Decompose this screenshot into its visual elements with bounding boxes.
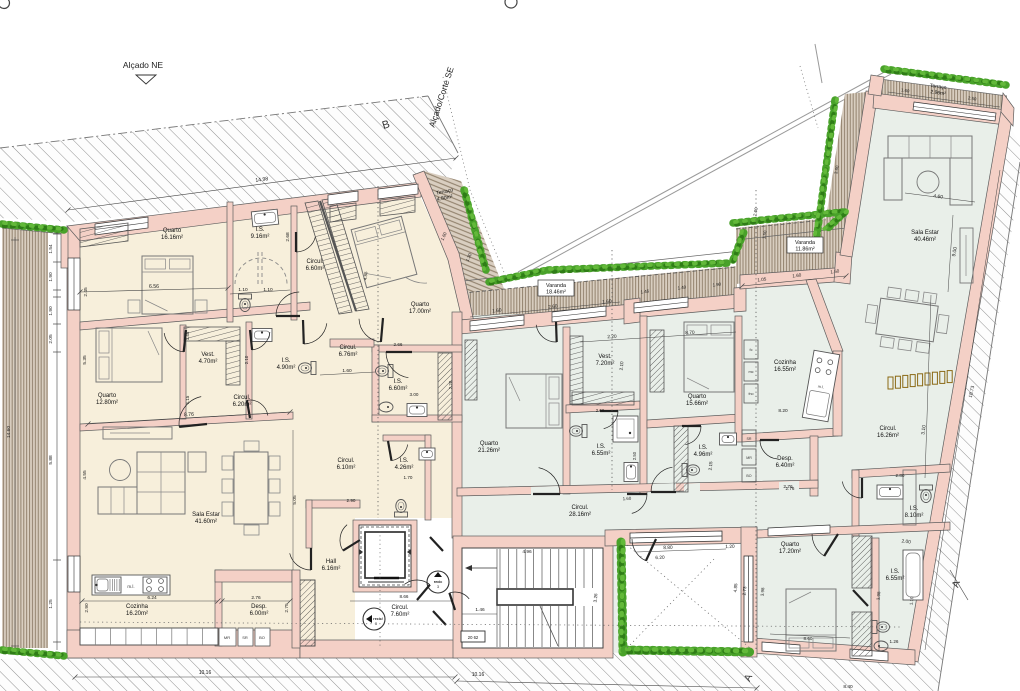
svg-text:8.76: 8.76	[184, 412, 195, 419]
svg-text:2.66: 2.66	[394, 342, 403, 347]
svg-text:1.60: 1.60	[792, 273, 802, 279]
svg-text:recic/: recic/	[373, 617, 382, 621]
svg-text:6.00m²: 6.00m²	[250, 611, 269, 617]
svg-text:1.10: 1.10	[238, 287, 248, 293]
svg-text:1.40: 1.40	[677, 285, 687, 291]
svg-text:6.55m²: 6.55m²	[592, 451, 611, 457]
svg-text:7.60m²: 7.60m²	[391, 612, 410, 618]
svg-text:MR: MR	[746, 456, 752, 460]
svg-text:2.80: 2.80	[896, 473, 905, 478]
svg-text:1.60: 1.60	[492, 307, 502, 314]
svg-text:Quarto: Quarto	[688, 394, 707, 400]
svg-text:I.S.: I.S.	[909, 506, 918, 512]
svg-text:1.60: 1.60	[602, 298, 612, 305]
svg-text:1.50: 1.50	[830, 269, 840, 275]
svg-text:11.86m²: 11.86m²	[795, 247, 815, 253]
svg-text:8.20: 8.20	[778, 408, 788, 414]
svg-text:Cozinha: Cozinha	[774, 360, 797, 366]
svg-text:8.80: 8.80	[663, 545, 673, 551]
svg-text:5.88: 5.88	[48, 455, 54, 465]
svg-text:1.05: 1.05	[757, 277, 767, 283]
svg-text:8.10m²: 8.10m²	[905, 513, 924, 519]
svg-text:Quarto: Quarto	[411, 302, 430, 308]
svg-text:12.80m²: 12.80m²	[96, 400, 118, 406]
svg-text:2.90: 2.90	[347, 498, 356, 503]
svg-text:Desp.: Desp.	[251, 604, 267, 610]
svg-text:2.15: 2.15	[708, 461, 714, 471]
svg-text:1.54: 1.54	[48, 244, 54, 254]
svg-text:Circul.: Circul.	[233, 395, 250, 401]
svg-text:9.16m²: 9.16m²	[251, 234, 270, 240]
svg-text:16.20m²: 16.20m²	[126, 611, 148, 617]
svg-text:1.46: 1.46	[475, 607, 485, 613]
svg-text:4.85: 4.85	[363, 271, 369, 281]
svg-text:1.90: 1.90	[48, 272, 54, 282]
svg-text:17.20m²: 17.20m²	[779, 549, 801, 555]
svg-text:1.46: 1.46	[640, 289, 650, 295]
svg-text:fno: fno	[749, 392, 754, 396]
svg-text:2.76: 2.76	[786, 486, 795, 491]
svg-text:I.S.: I.S.	[399, 458, 408, 464]
svg-text:Desp.: Desp.	[777, 456, 793, 462]
svg-text:8.40: 8.40	[843, 684, 853, 690]
svg-text:4.96m²: 4.96m²	[694, 452, 713, 458]
svg-text:6.16m²: 6.16m²	[322, 566, 341, 572]
svg-text:1.26: 1.26	[890, 639, 899, 644]
svg-text:SR: SR	[242, 635, 248, 640]
svg-text:40.46m²: 40.46m²	[914, 237, 936, 243]
svg-text:4.90m²: 4.90m²	[277, 365, 296, 371]
svg-text:Cozinha: Cozinha	[126, 604, 149, 610]
svg-text:Varanda: Varanda	[546, 283, 566, 289]
svg-text:Vest.: Vest.	[598, 354, 612, 360]
svg-text:I.S.: I.S.	[890, 569, 899, 575]
svg-text:7.20m²: 7.20m²	[596, 361, 615, 367]
svg-text:6.56: 6.56	[149, 284, 159, 290]
svg-text:2.45: 2.45	[83, 287, 89, 297]
svg-text:1.70: 1.70	[404, 475, 413, 480]
svg-text:2.50: 2.50	[632, 451, 637, 460]
svg-text:Hall: Hall	[326, 559, 336, 565]
svg-text:1.15: 1.15	[185, 395, 190, 404]
svg-text:Circul.: Circul.	[391, 605, 408, 611]
svg-text:Quarto: Quarto	[98, 393, 117, 399]
svg-text:16.55m²: 16.55m²	[774, 367, 796, 373]
svg-text:1.45: 1.45	[185, 331, 190, 340]
svg-text:6.60m²: 6.60m²	[306, 266, 325, 272]
svg-text:Quarto: Quarto	[480, 441, 499, 447]
svg-text:MR: MR	[224, 635, 230, 640]
svg-text:mc: mc	[748, 370, 753, 374]
svg-text:Circul.: Circul.	[571, 505, 588, 511]
svg-text:2.28: 2.28	[448, 380, 453, 389]
svg-text:6.24: 6.24	[147, 595, 157, 601]
svg-text:SR: SR	[747, 437, 752, 441]
svg-text:1.20: 1.20	[725, 544, 735, 550]
svg-text:Circul.: Circul.	[339, 345, 356, 351]
svg-text:BO: BO	[259, 635, 265, 640]
svg-text:2.68: 2.68	[285, 232, 291, 242]
svg-text:fc: fc	[750, 348, 753, 352]
svg-text:6.20: 6.20	[655, 555, 665, 561]
svg-text:Circul.: Circul.	[306, 259, 323, 265]
svg-text:8.66: 8.66	[400, 594, 409, 599]
svg-text:28.16m²: 28.16m²	[569, 512, 591, 518]
svg-text:2.10: 2.10	[244, 355, 249, 364]
svg-text:5.35: 5.35	[82, 355, 88, 365]
svg-text:6.10m²: 6.10m²	[337, 465, 356, 471]
svg-text:m.l.: m.l.	[127, 584, 134, 589]
svg-text:Quarto: Quarto	[163, 228, 182, 234]
svg-text:I.S.: I.S.	[281, 358, 290, 364]
svg-text:16.16m²: 16.16m²	[161, 235, 183, 241]
svg-text:Sala Estar: Sala Estar	[192, 512, 220, 518]
svg-text:2.76: 2.76	[251, 595, 261, 601]
svg-text:I.S.: I.S.	[698, 445, 707, 451]
svg-text:6.55m²: 6.55m²	[886, 576, 905, 582]
svg-text:1.60: 1.60	[623, 496, 632, 501]
svg-text:6.40m²: 6.40m²	[776, 463, 795, 469]
svg-text:1.10: 1.10	[263, 287, 273, 293]
svg-text:41.60m²: 41.60m²	[195, 519, 217, 525]
svg-text:1.90: 1.90	[48, 306, 54, 316]
svg-text:1.10: 1.10	[909, 596, 915, 606]
svg-text:6.60m²: 6.60m²	[389, 386, 408, 392]
svg-text:Quarto: Quarto	[781, 542, 800, 548]
svg-text:4.85: 4.85	[733, 583, 739, 593]
svg-text:I.S.: I.S.	[596, 444, 605, 450]
svg-text:3: 3	[437, 585, 439, 589]
svg-text:16.26m²: 16.26m²	[877, 433, 899, 439]
svg-text:I.S.: I.S.	[255, 227, 264, 233]
svg-text:Alçado NE: Alçado NE	[123, 60, 163, 70]
svg-text:4.55: 4.55	[82, 470, 88, 480]
svg-text:Varanda: Varanda	[795, 240, 815, 246]
svg-text:15.66m²: 15.66m²	[686, 401, 708, 407]
svg-text:Sala Estar: Sala Estar	[911, 230, 939, 236]
svg-text:2.73: 2.73	[742, 586, 748, 596]
svg-text:2.00: 2.00	[901, 539, 911, 546]
svg-text:Circul.: Circul.	[337, 458, 354, 464]
svg-text:17.00m²: 17.00m²	[409, 309, 431, 315]
svg-text:BO: BO	[746, 474, 751, 478]
svg-text:2.75: 2.75	[284, 603, 290, 613]
svg-text:I.S.: I.S.	[393, 379, 402, 385]
svg-text:6.20m²: 6.20m²	[233, 402, 252, 408]
svg-text:3.26: 3.26	[593, 593, 599, 603]
svg-text:recic: recic	[434, 580, 442, 584]
svg-text:10.16: 10.16	[199, 670, 212, 676]
svg-text:2.20: 2.20	[607, 334, 617, 340]
svg-text:8.60: 8.60	[804, 636, 813, 641]
svg-text:4.96: 4.96	[522, 549, 532, 555]
svg-text:20 62: 20 62	[468, 635, 479, 640]
svg-text:3.98: 3.98	[876, 591, 882, 601]
svg-text:2.05: 2.05	[48, 334, 54, 344]
svg-text:10.16: 10.16	[472, 672, 485, 678]
svg-text:21.26m²: 21.26m²	[478, 448, 500, 454]
svg-text:4.70m²: 4.70m²	[199, 359, 218, 365]
svg-text:1.25: 1.25	[48, 599, 54, 609]
svg-text:3.00: 3.00	[410, 392, 419, 397]
svg-text:1.90: 1.90	[712, 282, 722, 288]
svg-text:Circul.: Circul.	[879, 426, 896, 432]
svg-text:2.60: 2.60	[548, 303, 558, 310]
svg-text:6.76m²: 6.76m²	[339, 352, 358, 358]
svg-text:2.90: 2.90	[84, 603, 90, 613]
svg-text:3.98: 3.98	[760, 587, 766, 597]
svg-text:2.10: 2.10	[619, 361, 625, 371]
svg-text:Vest.: Vest.	[201, 352, 215, 358]
svg-text:2.66: 2.66	[596, 408, 605, 413]
svg-text:14.60: 14.60	[6, 426, 12, 438]
svg-text:18.46m²: 18.46m²	[546, 290, 566, 296]
svg-text:4.26m²: 4.26m²	[395, 465, 414, 471]
